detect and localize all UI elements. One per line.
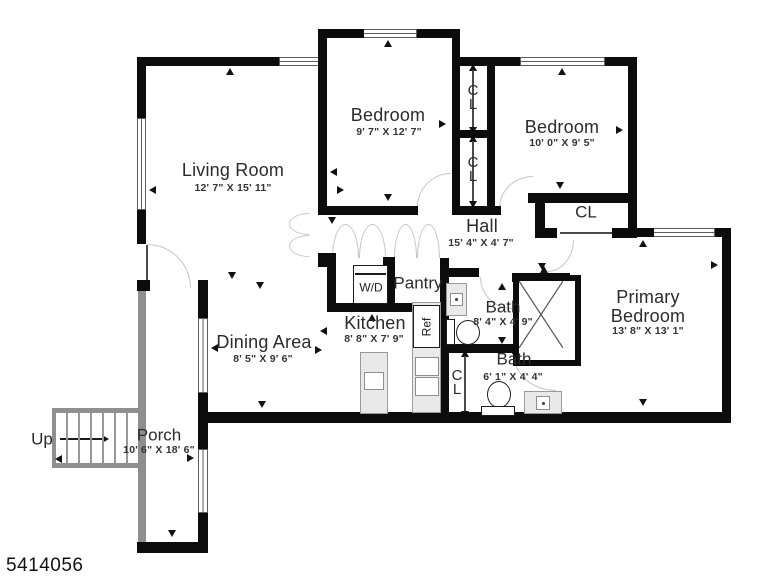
dimension-arrow bbox=[639, 240, 647, 247]
dimension-arrow bbox=[315, 346, 322, 354]
stair-step bbox=[114, 413, 116, 463]
porch-dims: 10' 6" X 18' 6" bbox=[123, 445, 195, 457]
dimension-arrow bbox=[639, 399, 647, 406]
dimension-arrow bbox=[384, 40, 392, 47]
floor-plan: Living Room 12' 7" X 15' 11" Bedroom 9' … bbox=[0, 0, 768, 578]
kitchen-label: Kitchen bbox=[344, 314, 405, 334]
wall bbox=[715, 228, 731, 237]
window bbox=[520, 57, 605, 66]
dimension-arrow bbox=[258, 401, 266, 408]
stair-step bbox=[78, 413, 80, 463]
bifold-door-arc bbox=[394, 224, 417, 258]
window bbox=[650, 228, 715, 237]
wall bbox=[535, 228, 557, 238]
wall bbox=[137, 57, 146, 118]
dimension-arrow bbox=[498, 337, 506, 344]
bedroom-top-dims: 9' 7" X 12' 7" bbox=[356, 127, 422, 139]
dimension-arrow bbox=[556, 182, 564, 189]
wall bbox=[637, 228, 654, 237]
wall bbox=[198, 412, 731, 423]
kitchen-dims: 8' 8" X 7' 9" bbox=[344, 334, 404, 346]
hall-label: Hall bbox=[466, 217, 498, 237]
wall bbox=[452, 206, 501, 215]
window bbox=[198, 449, 208, 513]
sink-icon bbox=[364, 372, 384, 390]
closet-label: CL bbox=[467, 156, 479, 184]
window bbox=[279, 57, 319, 66]
wall bbox=[137, 210, 146, 244]
stairs-border bbox=[53, 463, 141, 468]
wall bbox=[198, 280, 208, 318]
dimension-arrow bbox=[320, 327, 327, 335]
wall bbox=[137, 280, 150, 291]
living-room-label: Living Room bbox=[182, 161, 284, 181]
washer-dryer-label: W/D bbox=[359, 281, 382, 294]
toilet-tank-icon bbox=[481, 406, 515, 416]
bifold-door-arc bbox=[332, 224, 359, 258]
door-arc bbox=[547, 240, 574, 272]
sink-faucet bbox=[542, 402, 545, 405]
bath-lower-dims: 6' 1" X 4' 4" bbox=[483, 372, 543, 384]
porch-wall bbox=[138, 286, 146, 544]
wall bbox=[452, 57, 520, 66]
wall bbox=[198, 423, 208, 449]
primary-bedroom-dims: 13' 8" X 13' 1" bbox=[612, 326, 684, 338]
stove-icon bbox=[415, 357, 439, 376]
stair-step bbox=[90, 413, 92, 463]
dimension-arrow bbox=[337, 186, 344, 194]
closet-label: CL bbox=[575, 204, 597, 223]
bath-upper-label: Bath bbox=[486, 299, 521, 318]
dining-area-dims: 8' 5" X 9' 6" bbox=[233, 354, 293, 366]
dining-area-label: Dining Area bbox=[216, 333, 311, 353]
wall bbox=[318, 206, 418, 215]
wall bbox=[330, 303, 415, 312]
bifold-door-arc bbox=[417, 224, 440, 258]
door-arc bbox=[417, 173, 451, 207]
window bbox=[198, 318, 208, 393]
dimension-arrow bbox=[256, 282, 264, 289]
bath-upper-dims: 8' 4" X 4' 9" bbox=[473, 317, 533, 329]
door-arc bbox=[147, 244, 191, 288]
wall bbox=[605, 57, 637, 66]
wall bbox=[628, 57, 637, 237]
sliding-door-line bbox=[464, 356, 466, 411]
dimension-arrow bbox=[711, 261, 718, 269]
dimension-arrow bbox=[558, 68, 566, 75]
sliding-door-line bbox=[560, 232, 612, 234]
dimension-arrow bbox=[55, 455, 62, 463]
dimension-arrow bbox=[384, 194, 392, 201]
wall bbox=[722, 228, 731, 423]
closet-label: CL bbox=[467, 84, 479, 112]
wall bbox=[443, 268, 479, 277]
stairs-border bbox=[53, 408, 141, 413]
dimension-arrow bbox=[168, 530, 176, 537]
bifold-door-arc bbox=[359, 224, 386, 258]
refrigerator-label: Ref bbox=[420, 318, 433, 337]
window bbox=[360, 29, 417, 38]
window bbox=[137, 118, 146, 210]
stairs-up-label: Up bbox=[31, 431, 53, 450]
closet-label: CL bbox=[451, 369, 463, 397]
dimension-arrow bbox=[439, 120, 446, 128]
plan-id: 5414056 bbox=[6, 555, 83, 577]
stove-icon bbox=[415, 377, 439, 396]
living-room-dims: 12' 7" X 15' 11" bbox=[194, 183, 271, 195]
stair-step bbox=[66, 413, 68, 463]
stair-step bbox=[102, 413, 104, 463]
toilet-tank-icon bbox=[446, 319, 455, 345]
dimension-arrow bbox=[330, 168, 337, 176]
dimension-arrow bbox=[226, 68, 234, 75]
dimension-arrow bbox=[538, 263, 546, 270]
toilet-icon bbox=[487, 381, 511, 408]
bedroom-right-dims: 10' 0" X 9' 5" bbox=[529, 138, 595, 150]
double-door-arc bbox=[289, 235, 309, 257]
wall bbox=[612, 228, 637, 238]
wall bbox=[417, 29, 460, 38]
dimension-arrow bbox=[328, 217, 336, 224]
wall bbox=[528, 193, 637, 203]
wall bbox=[452, 130, 495, 138]
wall bbox=[137, 57, 279, 66]
primary-bedroom-label: Primary Bedroom bbox=[599, 288, 697, 326]
wall bbox=[318, 29, 327, 215]
wall bbox=[318, 253, 332, 267]
hall-dims: 15' 4" X 4' 7" bbox=[448, 238, 514, 250]
wall bbox=[137, 542, 208, 553]
bedroom-top-label: Bedroom bbox=[351, 106, 425, 126]
washer-dryer-lid bbox=[355, 273, 386, 275]
door-arc bbox=[499, 176, 533, 208]
porch-label: Porch bbox=[137, 427, 181, 446]
bath-lower-label: Bath bbox=[497, 351, 532, 370]
dimension-arrow bbox=[228, 272, 236, 279]
bedroom-right-label: Bedroom bbox=[525, 118, 599, 138]
double-door-arc bbox=[289, 213, 309, 235]
dimension-arrow bbox=[616, 126, 623, 134]
wall bbox=[318, 29, 364, 38]
pantry-label: Pantry bbox=[393, 275, 442, 294]
sink-faucet bbox=[455, 298, 458, 301]
dimension-arrow bbox=[149, 186, 156, 194]
